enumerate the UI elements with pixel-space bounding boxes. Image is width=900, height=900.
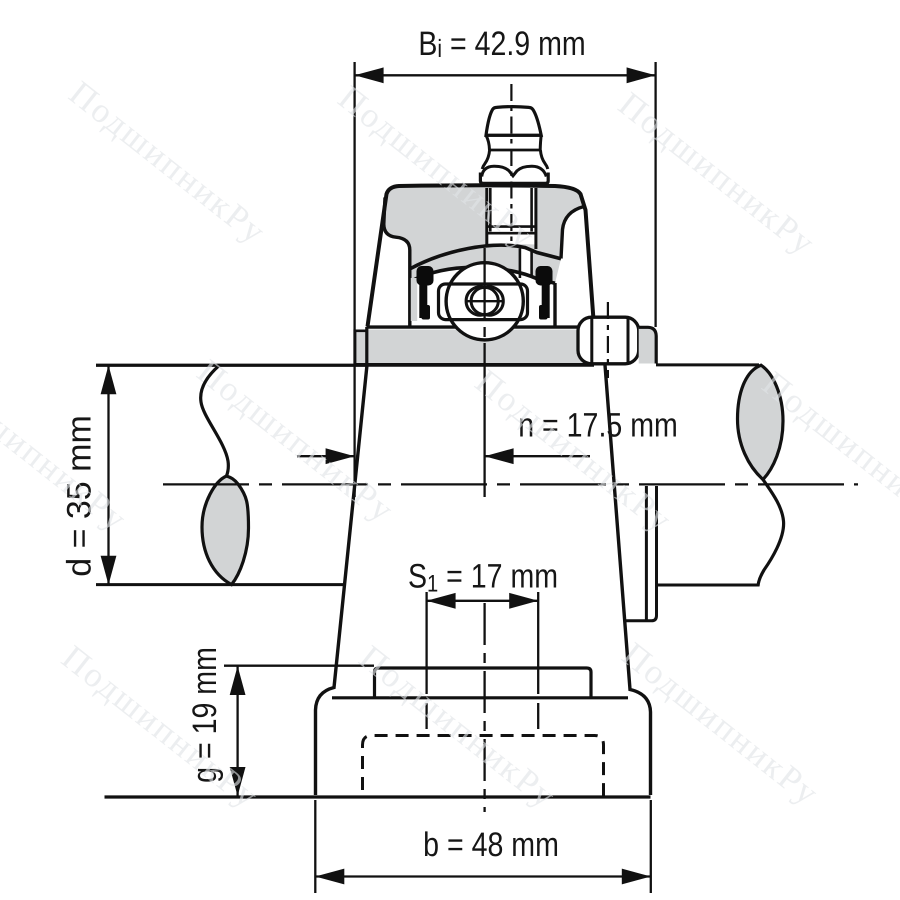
- svg-text:Bi = 42.9 mm: Bi = 42.9 mm: [418, 25, 585, 63]
- svg-text:b = 48 mm: b = 48 mm: [423, 826, 559, 864]
